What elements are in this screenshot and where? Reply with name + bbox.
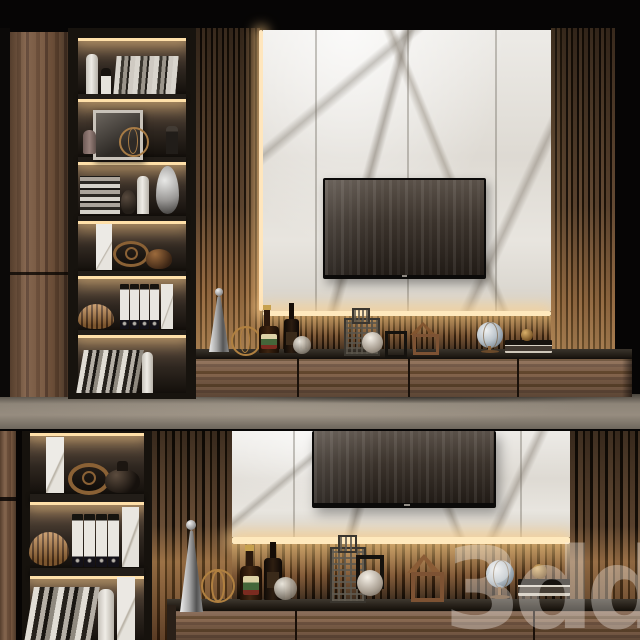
whiskey-bottle-cap	[263, 305, 271, 310]
black-vase-neck	[117, 461, 128, 471]
leaning-books	[24, 587, 100, 640]
marble-bookend	[117, 577, 135, 640]
drawer-gap	[297, 359, 299, 397]
black-round-vase	[105, 469, 140, 493]
tv-screen	[325, 180, 484, 275]
eye-sculpture	[113, 241, 149, 267]
leaning-books	[76, 350, 144, 393]
eye-pupil	[82, 471, 96, 485]
white-bottle-vase	[86, 54, 98, 94]
dark-bottle	[166, 126, 178, 154]
eye-sculpture	[68, 463, 110, 495]
gold-wire-sphere	[119, 127, 149, 157]
whiskey-label	[243, 576, 259, 595]
black-display-frame	[385, 331, 407, 358]
cone-candlestick-knob	[215, 288, 223, 296]
white-bottle-vase	[98, 589, 114, 640]
tv-logo-dot	[404, 504, 410, 506]
console-drawers	[196, 359, 632, 397]
wardrobe-door-gap	[10, 272, 68, 275]
slat-panel-left-shading	[196, 28, 262, 352]
whiskey-label	[261, 334, 277, 349]
tv-logo-dot	[402, 275, 407, 277]
drawer-gap	[295, 611, 297, 640]
wardrobe-door	[10, 32, 70, 397]
wire-sphere-inner	[128, 128, 138, 154]
globe-meridian	[483, 322, 498, 349]
whiskey-bottle-neck	[264, 308, 270, 328]
marble-bookend	[161, 284, 173, 329]
marble-seam	[495, 30, 497, 311]
house-body	[413, 334, 439, 355]
drawer-gap	[517, 359, 519, 397]
ring-binder	[72, 514, 83, 567]
marble-seam	[315, 30, 317, 311]
house-figurine	[405, 554, 443, 599]
render-canvas: 3ddd	[0, 0, 640, 640]
gold-wire-sphere	[231, 326, 261, 356]
console-left-side	[167, 605, 176, 640]
wardrobe-door-edge	[0, 431, 16, 640]
white-jar-black-cap	[101, 68, 111, 94]
console-side-shade	[622, 359, 632, 397]
mauve-vase	[83, 130, 96, 154]
cone-candlestick-knob	[186, 520, 196, 530]
desk-globe	[477, 322, 503, 348]
lattice-tower-top	[352, 308, 370, 324]
watermark-3ddd: 3ddd	[444, 547, 640, 634]
wardrobe-door-gap	[0, 497, 16, 501]
liquor-bottle-neck	[289, 303, 294, 320]
ring-binder	[150, 284, 159, 329]
eye-pupil	[125, 247, 138, 260]
house-roof	[407, 554, 441, 573]
marble-bookend	[46, 437, 64, 493]
wire-sphere-inner	[240, 327, 250, 353]
tv-bottom-corner	[312, 431, 496, 508]
whiskey-bottle	[259, 326, 279, 353]
whiskey-bottle-cap	[245, 545, 254, 551]
shelf-divider	[30, 568, 144, 576]
stacked-coffee-books	[505, 340, 552, 353]
shelf-divider	[30, 494, 144, 502]
ribbed-bronze-bowl	[29, 532, 69, 566]
glass-sphere	[357, 570, 383, 596]
gold-ball-on-books	[521, 329, 533, 341]
ring-binder	[96, 514, 107, 567]
house-body	[411, 572, 444, 602]
ring-binder	[108, 514, 119, 567]
whiskey-bottle-neck	[246, 549, 253, 567]
small-glass-ball	[274, 577, 297, 600]
gold-wire-sphere	[201, 569, 235, 603]
wire-sphere-inner	[211, 570, 225, 602]
bronze-vase	[146, 249, 172, 269]
tv-screen	[314, 431, 494, 503]
ribbed-bronze-bowl	[78, 304, 114, 329]
slat-panel-right-shading	[551, 28, 615, 352]
lattice-tower-top	[338, 535, 357, 553]
marble-seam	[293, 431, 295, 537]
whiskey-bottle	[240, 566, 262, 600]
view-bottom-detail: 3ddd	[0, 429, 640, 640]
house-figurine	[408, 322, 438, 352]
white-bottle-vase	[142, 352, 153, 393]
ring-binder	[130, 284, 139, 329]
ring-binder	[140, 284, 149, 329]
liquor-bottle-neck	[270, 542, 276, 559]
marble-seam	[520, 431, 522, 537]
view-top-full	[0, 0, 640, 429]
ring-binder	[120, 284, 129, 329]
wall-mounted-tv	[323, 178, 486, 279]
small-glass-ball	[293, 336, 311, 354]
white-tall-vase	[137, 176, 149, 214]
globe-base	[481, 350, 499, 353]
glass-sphere	[362, 332, 383, 353]
ring-binder	[84, 514, 95, 567]
marble-bookend	[96, 224, 112, 270]
stacked-books	[80, 176, 120, 214]
marble-bookend	[122, 507, 139, 567]
standing-books	[113, 56, 178, 94]
drawer-gap	[408, 359, 410, 397]
round-dark-vase	[121, 190, 136, 214]
wardrobe-side-panel	[0, 28, 10, 397]
